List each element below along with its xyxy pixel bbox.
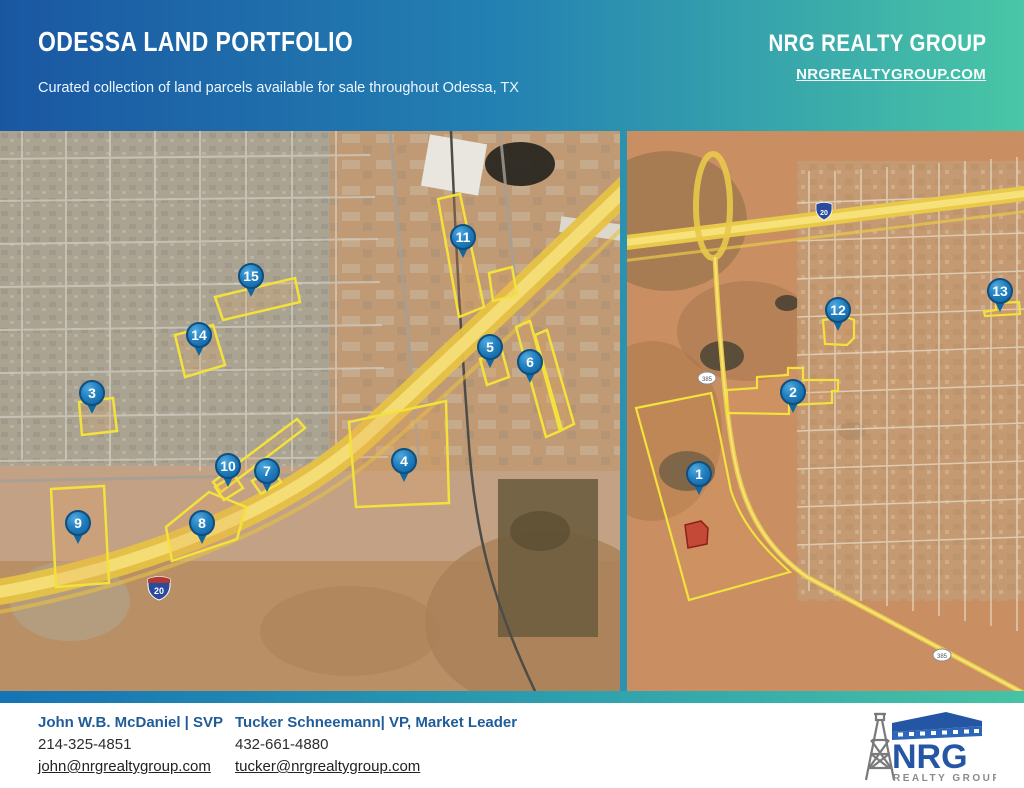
map-marker-number: 10 bbox=[215, 453, 241, 479]
nrg-logo-image: NRG REALTY GROUP bbox=[856, 706, 996, 786]
warehouse-icon bbox=[892, 712, 982, 740]
map-marker-number: 2 bbox=[780, 379, 806, 405]
map-marker-number: 15 bbox=[238, 263, 264, 289]
contact-email-link[interactable]: tucker@nrgrealtygroup.com bbox=[235, 758, 420, 775]
map-marker-10: 10 bbox=[215, 453, 241, 489]
map-marker-3: 3 bbox=[79, 380, 105, 416]
contact-john: John W.B. McDaniel | SVP 214-325-4851 jo… bbox=[38, 712, 223, 778]
satellite-map-right: 20 385 385 121213 bbox=[627, 131, 1024, 691]
contact-email-link[interactable]: john@nrgrealtygroup.com bbox=[38, 758, 211, 775]
map-marker-number: 9 bbox=[65, 510, 91, 536]
map-marker-14: 14 bbox=[186, 322, 212, 358]
header-right: NRG REALTY GROUP NRGREALTYGROUP.COM bbox=[730, 30, 986, 84]
map-marker-number: 3 bbox=[79, 380, 105, 406]
map-marker-number: 6 bbox=[517, 349, 543, 375]
map-marker-number: 11 bbox=[450, 224, 476, 250]
map-marker-number: 8 bbox=[189, 510, 215, 536]
map-marker-number: 7 bbox=[254, 458, 280, 484]
map-marker-4: 4 bbox=[391, 448, 417, 484]
map-marker-12: 12 bbox=[825, 297, 851, 333]
header: ODESSA LAND PORTFOLIO Curated collection… bbox=[0, 0, 1024, 131]
satellite-map-left: 20 345678910111415 bbox=[0, 131, 620, 691]
oil-derrick-icon bbox=[866, 714, 894, 780]
map-marker-1: 1 bbox=[686, 461, 712, 497]
contact-phone: 432-661-4880 bbox=[235, 734, 517, 756]
company-name: NRG REALTY GROUP bbox=[768, 30, 986, 58]
map-marker-15: 15 bbox=[238, 263, 264, 299]
map-marker-number: 12 bbox=[825, 297, 851, 323]
map-marker-8: 8 bbox=[189, 510, 215, 546]
page-title: ODESSA LAND PORTFOLIO bbox=[38, 26, 432, 58]
map-marker-9: 9 bbox=[65, 510, 91, 546]
map-left-markers: 345678910111415 bbox=[0, 131, 620, 691]
map-marker-number: 13 bbox=[987, 278, 1013, 304]
accent-bar bbox=[0, 691, 1024, 703]
map-marker-5: 5 bbox=[477, 334, 503, 370]
contact-tucker: Tucker Schneemann| VP, Market Leader 432… bbox=[235, 712, 517, 778]
portfolio-page: ODESSA LAND PORTFOLIO Curated collection… bbox=[0, 0, 1024, 788]
map-marker-13: 13 bbox=[987, 278, 1013, 314]
company-website-link[interactable]: NRGREALTYGROUP.COM bbox=[796, 66, 986, 83]
map-marker-number: 1 bbox=[686, 461, 712, 487]
maps-section: 20 345678910111415 bbox=[0, 131, 1024, 691]
footer: John W.B. McDaniel | SVP 214-325-4851 jo… bbox=[0, 703, 1024, 788]
map-right-markers: 121213 bbox=[627, 131, 1024, 691]
contact-name: Tucker Schneemann| VP, Market Leader bbox=[235, 712, 517, 734]
nrg-logo: NRG REALTY GROUP bbox=[856, 706, 996, 786]
map-marker-number: 4 bbox=[391, 448, 417, 474]
logo-tagline-text: REALTY GROUP bbox=[893, 773, 996, 784]
map-marker-7: 7 bbox=[254, 458, 280, 494]
header-left: ODESSA LAND PORTFOLIO Curated collection… bbox=[38, 26, 519, 96]
contact-name: John W.B. McDaniel | SVP bbox=[38, 712, 223, 734]
map-marker-11: 11 bbox=[450, 224, 476, 260]
map-marker-2: 2 bbox=[780, 379, 806, 415]
logo-nrg-text: NRG bbox=[892, 738, 968, 776]
contact-phone: 214-325-4851 bbox=[38, 734, 223, 756]
map-marker-number: 14 bbox=[186, 322, 212, 348]
map-marker-number: 5 bbox=[477, 334, 503, 360]
map-marker-6: 6 bbox=[517, 349, 543, 385]
page-subtitle: Curated collection of land parcels avail… bbox=[38, 80, 519, 96]
